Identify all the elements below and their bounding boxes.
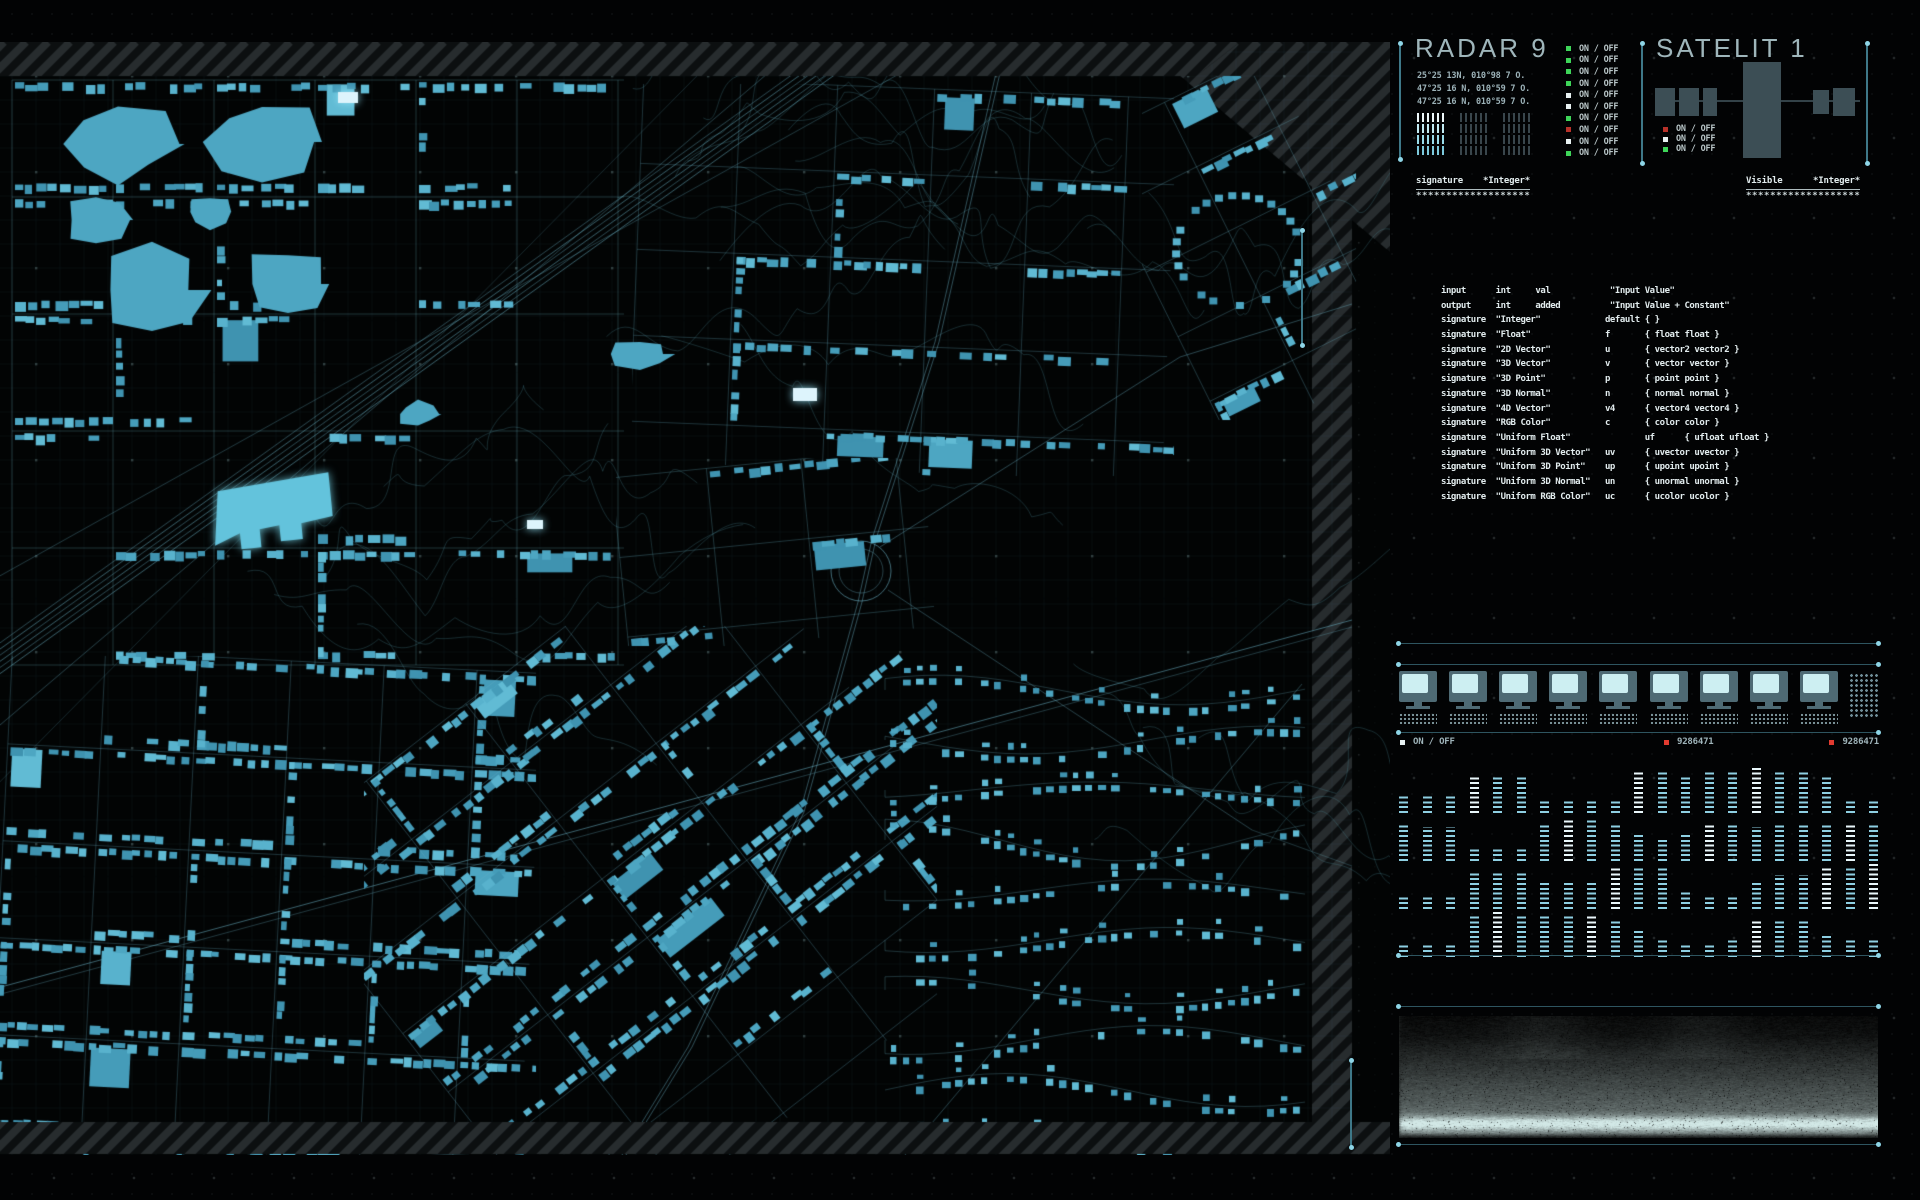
table-row: signature "2D Vector" u { vector2 vector…	[1441, 343, 1769, 358]
meter-column	[1799, 875, 1808, 909]
monitor-icon[interactable]	[1799, 671, 1839, 724]
meter-column	[1822, 933, 1831, 957]
meter-row	[1398, 765, 1879, 813]
meter-column	[1822, 866, 1831, 909]
onoff-toggle[interactable]: ON / OFF	[1663, 144, 1715, 154]
monitor-screen	[1402, 674, 1428, 693]
map-marker-line-2	[1350, 1062, 1352, 1146]
monitor-base	[1556, 706, 1580, 709]
map-marker-line	[1301, 232, 1303, 344]
meter-column	[1822, 823, 1831, 861]
keyboard-dots	[1599, 713, 1637, 724]
meter-column	[1775, 875, 1784, 909]
meter-column	[1470, 775, 1479, 813]
signal-meters	[1398, 765, 1879, 957]
comb-row	[1460, 113, 1490, 122]
monitor-base	[1707, 706, 1731, 709]
meter-column	[1658, 770, 1667, 813]
comb-row	[1417, 135, 1447, 144]
monitor-frame	[1750, 671, 1788, 702]
radar-coord-line: 47°25 16 N, 010°59 7 O.	[1417, 83, 1530, 96]
meter-column	[1564, 799, 1573, 813]
monitor-screen	[1703, 674, 1729, 693]
meter-column	[1705, 770, 1714, 813]
toggle-label: ON / OFF	[1579, 125, 1618, 135]
keyboard-dots	[1750, 713, 1788, 724]
monitor-frame	[1599, 671, 1637, 702]
keyboard-dots	[1700, 713, 1738, 724]
table-row: input int val "Input Value"	[1441, 284, 1769, 299]
monitor-power-toggle[interactable]: ON / OFF	[1400, 737, 1455, 747]
meter-column	[1681, 890, 1690, 909]
meter-column	[1728, 895, 1737, 909]
monitor-screen	[1552, 674, 1578, 693]
radar-toggle-list: ON / OFFON / OFFON / OFFON / OFFON / OFF…	[1566, 43, 1618, 159]
toggle-label: ON / OFF	[1676, 134, 1715, 144]
solar-panel	[1813, 90, 1829, 114]
radar-coord-line: 25°25 13N, 010°98 7 O.	[1417, 70, 1530, 83]
keyboard-dots	[1399, 713, 1437, 724]
onoff-toggle[interactable]: ON / OFF	[1566, 113, 1618, 125]
onoff-toggle[interactable]: ON / OFF	[1663, 124, 1715, 134]
monitor-screen	[1753, 674, 1779, 693]
meter-column	[1799, 919, 1808, 957]
city-map-canvas[interactable]	[0, 42, 1390, 1155]
meter-column	[1446, 895, 1455, 909]
comb-row	[1460, 124, 1490, 133]
onoff-toggle[interactable]: ON / OFF	[1566, 147, 1618, 159]
comb-row	[1417, 146, 1447, 155]
monitor-icon[interactable]	[1448, 671, 1488, 724]
monitor-panel-line	[1398, 664, 1879, 665]
toggle-label: ON / OFF	[1579, 102, 1618, 112]
toggle-state-icon	[1566, 139, 1571, 144]
meter-column	[1517, 775, 1526, 813]
meter-column	[1423, 794, 1432, 813]
table-row: signature "4D Vector" v4 { vector4 vecto…	[1441, 402, 1769, 417]
meter-column	[1611, 866, 1620, 909]
toggle-state-icon	[1566, 58, 1571, 63]
meter-column	[1399, 794, 1408, 813]
meter-column	[1470, 871, 1479, 909]
meter-column	[1587, 914, 1596, 957]
meter-column	[1493, 871, 1502, 909]
table-row: signature "Uniform 3D Point" up { upoint…	[1441, 460, 1769, 475]
meter-column	[1752, 880, 1761, 909]
meter-column	[1681, 832, 1690, 861]
meter-row	[1398, 813, 1879, 861]
satellite-divider-line	[1641, 45, 1643, 162]
meter-column	[1775, 770, 1784, 813]
meter-column	[1540, 823, 1549, 861]
radar-coordinates: 25°25 13N, 010°98 7 O. 47°25 16 N, 010°5…	[1417, 70, 1530, 109]
monitor-screen	[1502, 674, 1528, 693]
table-row: signature "3D Vector" v { vector vector …	[1441, 357, 1769, 372]
monitor-row	[1398, 671, 1879, 724]
meter-column	[1752, 919, 1761, 957]
toggle-state-icon	[1566, 104, 1571, 109]
meter-column	[1493, 847, 1502, 861]
table-row: signature "Integer" default { }	[1441, 313, 1769, 328]
meter-column	[1423, 827, 1432, 861]
onoff-toggle[interactable]: ON / OFF	[1566, 66, 1618, 78]
meter-column	[1705, 823, 1714, 861]
radar-signal-combs	[1417, 113, 1533, 155]
monitor-base	[1657, 706, 1681, 709]
meter-column	[1399, 823, 1408, 861]
meter-column	[1540, 880, 1549, 909]
monitor-base	[1406, 706, 1430, 709]
monitor-icon[interactable]	[1498, 671, 1538, 724]
monitor-icon[interactable]	[1548, 671, 1588, 724]
signal-comb-idle	[1503, 113, 1533, 155]
comb-row	[1503, 135, 1533, 144]
signature-header-label: signature	[1416, 176, 1463, 186]
meter-column	[1611, 919, 1620, 957]
onoff-toggle[interactable]: ON / OFF	[1566, 124, 1618, 136]
signal-comb-active	[1417, 113, 1447, 155]
onoff-toggle[interactable]: ON / OFF	[1566, 101, 1618, 113]
visible-header-label: Visible	[1746, 176, 1783, 186]
monitor-base	[1757, 706, 1781, 709]
monitor-code-value: 9286471	[1842, 737, 1879, 747]
monitor-code-value: 9286471	[1677, 737, 1714, 747]
monitor-screen	[1602, 674, 1628, 693]
toggle-label: ON / OFF	[1579, 67, 1618, 77]
meter-column	[1658, 866, 1667, 909]
meter-column	[1846, 799, 1855, 813]
solar-panel	[1655, 88, 1675, 116]
meter-column	[1728, 770, 1737, 813]
onoff-toggle[interactable]: ON / OFF	[1566, 43, 1618, 55]
radar-title: RADAR 9	[1415, 33, 1549, 64]
meter-column	[1634, 928, 1643, 957]
comb-row	[1503, 146, 1533, 155]
satellite-accent-line	[1866, 45, 1868, 162]
keyboard-dots	[1650, 713, 1688, 724]
monitor-screen	[1452, 674, 1478, 693]
meter-column	[1611, 799, 1620, 813]
meter-column	[1517, 914, 1526, 957]
monitor-code-1: 9286471	[1664, 737, 1714, 747]
solar-panel	[1703, 88, 1717, 116]
meter-column	[1423, 895, 1432, 909]
meter-column	[1564, 818, 1573, 861]
toggle-state-icon	[1566, 116, 1571, 121]
meter-column	[1869, 861, 1878, 909]
meter-row	[1398, 909, 1879, 957]
meter-column	[1587, 818, 1596, 861]
meter-column	[1517, 871, 1526, 909]
monitor-frame	[1449, 671, 1487, 702]
monitor-base	[1506, 706, 1530, 709]
radar-coord-line: 47°25 16 N, 010°59 7 O.	[1417, 96, 1530, 109]
toggle-label: ON / OFF	[1676, 124, 1715, 134]
comb-row	[1503, 124, 1533, 133]
monitor-power-label: ON / OFF	[1413, 737, 1455, 747]
meter-column	[1752, 765, 1761, 813]
spectrogram-canvas	[1399, 1016, 1878, 1138]
meter-column	[1846, 866, 1855, 909]
toggle-state-icon	[1663, 137, 1668, 142]
meter-column	[1728, 823, 1737, 861]
monitor-panel: ON / OFF 9286471 9286471	[1398, 640, 1879, 752]
toggle-state-icon	[1566, 93, 1571, 98]
visible-header-stars: ************************	[1746, 191, 1860, 201]
table-row: signature "Uniform Float" uf { ufloat uf…	[1441, 431, 1769, 446]
toggle-label: ON / OFF	[1579, 55, 1618, 65]
signature-header-stars: ************************	[1416, 191, 1530, 201]
meter-column	[1587, 799, 1596, 813]
meter-column	[1493, 775, 1502, 813]
toggle-state-icon	[1566, 151, 1571, 156]
meter-column	[1846, 823, 1855, 861]
table-row: output int added "Input Value + Constant…	[1441, 299, 1769, 314]
toggle-label: ON / OFF	[1676, 144, 1715, 154]
meter-column	[1446, 827, 1455, 861]
meter-column	[1822, 775, 1831, 813]
meter-column	[1470, 914, 1479, 957]
onoff-toggle[interactable]: ON / OFF	[1566, 89, 1618, 101]
monitor-icon[interactable]	[1598, 671, 1638, 724]
meter-column	[1634, 770, 1643, 813]
solar-panel	[1833, 88, 1855, 116]
monitor-icon[interactable]	[1398, 671, 1438, 724]
meter-column	[1587, 880, 1596, 909]
meter-column	[1517, 847, 1526, 861]
power-state-icon	[1400, 740, 1405, 745]
signature-table: input int val "Input Value"output int ad…	[1441, 284, 1769, 504]
meter-column	[1540, 914, 1549, 957]
monitor-frame	[1549, 671, 1587, 702]
monitor-icon[interactable]	[1749, 671, 1789, 724]
keyboard-dots	[1549, 713, 1587, 724]
table-row: signature "RGB Color" c { color color }	[1441, 416, 1769, 431]
onoff-toggle[interactable]: ON / OFF	[1566, 136, 1618, 148]
satellite-toggle-list: ON / OFFON / OFFON / OFF	[1663, 124, 1715, 154]
onoff-toggle[interactable]: ON / OFF	[1663, 134, 1715, 144]
table-row: signature "Uniform 3D Normal" un { unorm…	[1441, 475, 1769, 490]
table-row: signature "Float" f { float float }	[1441, 328, 1769, 343]
monitor-code-2: 9286471	[1829, 737, 1879, 747]
spectrogram-top-line	[1398, 1006, 1879, 1007]
signature-header-value[interactable]: *Integer*	[1483, 176, 1530, 186]
satellite-body	[1743, 62, 1781, 158]
meter-column	[1399, 895, 1408, 909]
toggle-label: ON / OFF	[1579, 44, 1618, 54]
monitor-frame	[1499, 671, 1537, 702]
record-icon	[1829, 740, 1834, 745]
table-row: signature "3D Normal" n { normal normal …	[1441, 387, 1769, 402]
meter-column	[1446, 794, 1455, 813]
meter-column	[1869, 799, 1878, 813]
onoff-toggle[interactable]: ON / OFF	[1566, 78, 1618, 90]
meters-baseline	[1398, 955, 1879, 956]
signal-comb-idle	[1460, 113, 1490, 155]
meter-column	[1564, 914, 1573, 957]
keyboard-dots	[1800, 713, 1838, 724]
comb-row	[1460, 146, 1490, 155]
table-row: signature "Uniform RGB Color" uc { ucolo…	[1441, 490, 1769, 505]
comb-row	[1460, 135, 1490, 144]
monitor-base	[1456, 706, 1480, 709]
monitor-frame	[1700, 671, 1738, 702]
monitor-icon[interactable]	[1649, 671, 1689, 724]
meter-column	[1611, 823, 1620, 861]
comb-row	[1417, 124, 1447, 133]
solar-panel	[1679, 88, 1699, 116]
toggle-state-icon	[1566, 46, 1571, 51]
monitor-frame	[1650, 671, 1688, 702]
visible-header: Visible *Integer* **********************…	[1746, 176, 1860, 201]
meter-column	[1634, 832, 1643, 861]
meter-column	[1540, 799, 1549, 813]
monitor-base	[1807, 706, 1831, 709]
meter-column	[1705, 895, 1714, 909]
meter-column	[1658, 837, 1667, 861]
meter-column	[1775, 823, 1784, 861]
meter-column	[1470, 847, 1479, 861]
table-row: signature "Uniform 3D Vector" uv { uvect…	[1441, 446, 1769, 461]
toggle-state-icon	[1566, 69, 1571, 74]
toggle-state-icon	[1663, 147, 1668, 152]
monitor-frame	[1800, 671, 1838, 702]
meter-column	[1775, 919, 1784, 957]
table-row: signature "3D Point" p { point point }	[1441, 372, 1769, 387]
meter-column	[1869, 823, 1878, 861]
meter-row	[1398, 861, 1879, 909]
toggle-state-icon	[1566, 81, 1571, 86]
toggle-label: ON / OFF	[1579, 113, 1618, 123]
toggle-state-icon	[1566, 127, 1571, 132]
toggle-label: ON / OFF	[1579, 79, 1618, 89]
monitor-screen	[1803, 674, 1829, 693]
record-icon	[1664, 740, 1669, 745]
monitor-panel-line	[1398, 643, 1879, 644]
meter-column	[1493, 909, 1502, 957]
visible-header-value[interactable]: *Integer*	[1813, 176, 1860, 186]
meter-column	[1681, 775, 1690, 813]
meter-column	[1752, 827, 1761, 861]
toggle-state-icon	[1663, 127, 1668, 132]
dot-matrix-block	[1849, 673, 1879, 719]
toggle-label: ON / OFF	[1579, 148, 1618, 158]
onoff-toggle[interactable]: ON / OFF	[1566, 55, 1618, 67]
monitor-frame	[1399, 671, 1437, 702]
spectrogram-bottom-line	[1398, 1144, 1879, 1145]
radar-accent-line	[1399, 45, 1401, 158]
signature-header: signature *Integer* ********************…	[1416, 176, 1530, 201]
comb-row	[1417, 113, 1447, 122]
keyboard-dots	[1449, 713, 1487, 724]
meter-column	[1799, 823, 1808, 861]
meter-column	[1799, 770, 1808, 813]
monitor-screen	[1653, 674, 1679, 693]
toggle-label: ON / OFF	[1579, 137, 1618, 147]
keyboard-dots	[1499, 713, 1537, 724]
monitor-icon[interactable]	[1699, 671, 1739, 724]
comb-row	[1503, 113, 1533, 122]
monitor-base	[1606, 706, 1630, 709]
meter-column	[1634, 866, 1643, 909]
toggle-label: ON / OFF	[1579, 90, 1618, 100]
meter-column	[1564, 880, 1573, 909]
monitor-panel-line	[1398, 732, 1879, 733]
